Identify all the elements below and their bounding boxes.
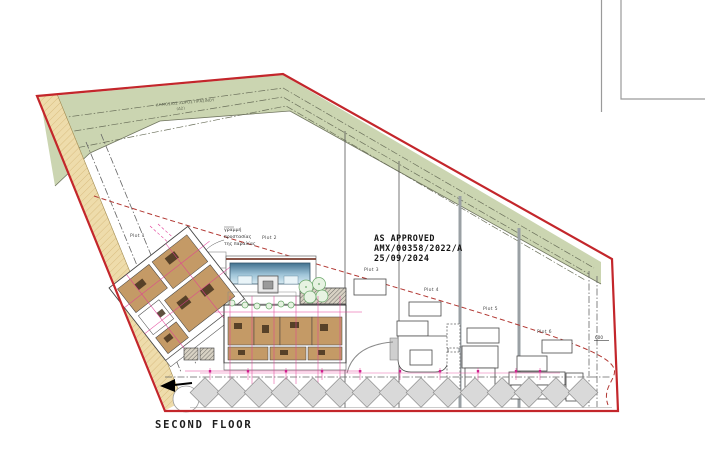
plot-1-label: Plot 1 xyxy=(130,233,145,239)
drawing-sheet: ΔΗΜΟΣΙΟΣ ΧΩΡΟΣ ΠΡΑΣΙΝΟΥ (Δ2) 600 γραμμή … xyxy=(0,0,705,469)
setback-dimension: 600 xyxy=(595,335,603,340)
plot-5-label: Plot 5 xyxy=(483,306,498,312)
stamp-line-2: AMX/00358/2022/A xyxy=(374,243,463,253)
approval-stamp: AS APPROVED AMX/00358/2022/A 25/09/2024 xyxy=(374,233,463,263)
stamp-line-1: AS APPROVED xyxy=(374,233,435,243)
site-plan: ΔΗΜΟΣΙΟΣ ΧΩΡΟΣ ΠΡΑΣΙΝΟΥ (Δ2) 600 γραμμή … xyxy=(0,0,705,469)
floor-title: SECOND FLOOR xyxy=(155,419,252,431)
driveway-arc xyxy=(347,342,393,373)
plot-4-label: Plot 4 xyxy=(424,287,439,293)
sheet-frame-lines xyxy=(602,0,705,112)
green-area-shape xyxy=(40,75,601,284)
neighbor-buildings xyxy=(354,279,583,401)
public-green-space: ΔΗΜΟΣΙΟΣ ΧΩΡΟΣ ΠΡΑΣΙΝΟΥ (Δ2) xyxy=(40,75,601,284)
plot-2-label: Plot 2 xyxy=(262,235,277,241)
beach-line-label-1: γραμμή xyxy=(224,226,242,233)
green-area-label-2: (Δ2) xyxy=(176,106,185,111)
stair-cores xyxy=(184,348,214,360)
stamp-line-3: 25/09/2024 xyxy=(374,253,429,263)
beach-line-label-2: προστασίας xyxy=(224,233,252,240)
plot-6-label: Plot 6 xyxy=(537,329,552,335)
beach-line-label-3: της παραλίας xyxy=(224,240,256,247)
plot-3-label: Plot 3 xyxy=(364,267,379,273)
